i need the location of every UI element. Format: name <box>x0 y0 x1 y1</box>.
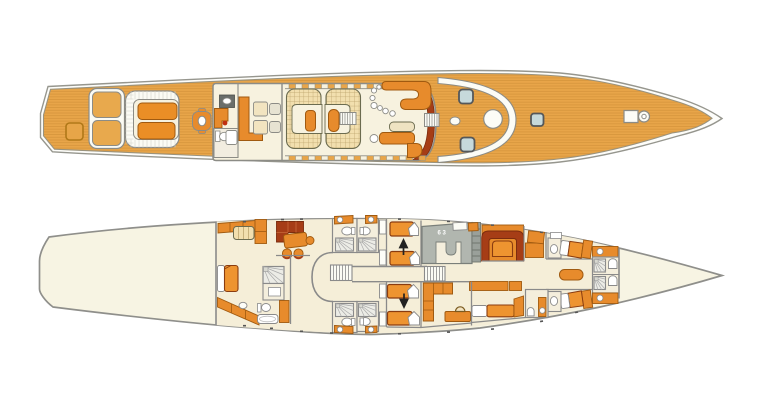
svg-text:6 3: 6 3 <box>438 231 447 237</box>
